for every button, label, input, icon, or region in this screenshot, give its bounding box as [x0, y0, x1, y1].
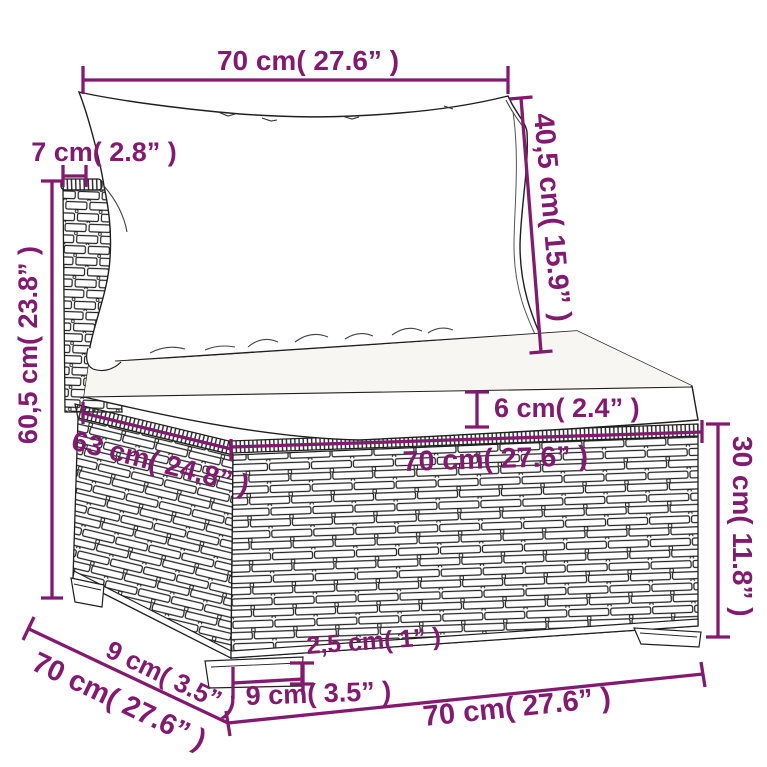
svg-text:70 cm( 27.6” ): 70 cm( 27.6” )	[421, 682, 612, 733]
svg-text:40,5 cm( 15.9” ): 40,5 cm( 15.9” )	[527, 112, 577, 323]
svg-text:7 cm( 2.8” ): 7 cm( 2.8” )	[31, 137, 177, 167]
svg-text:30 cm( 11.8” ): 30 cm( 11.8” )	[727, 436, 758, 617]
svg-text:70 cm( 27.6” ): 70 cm( 27.6” )	[217, 45, 399, 76]
svg-text:70 cm( 27.6” ): 70 cm( 27.6” )	[402, 440, 588, 478]
svg-text:9 cm( 3.5” ): 9 cm( 3.5” )	[245, 676, 392, 711]
svg-text:60,5 cm( 23.8” ): 60,5 cm( 23.8” )	[13, 246, 43, 444]
svg-text:6 cm( 2.4” ): 6 cm( 2.4” )	[494, 393, 640, 423]
